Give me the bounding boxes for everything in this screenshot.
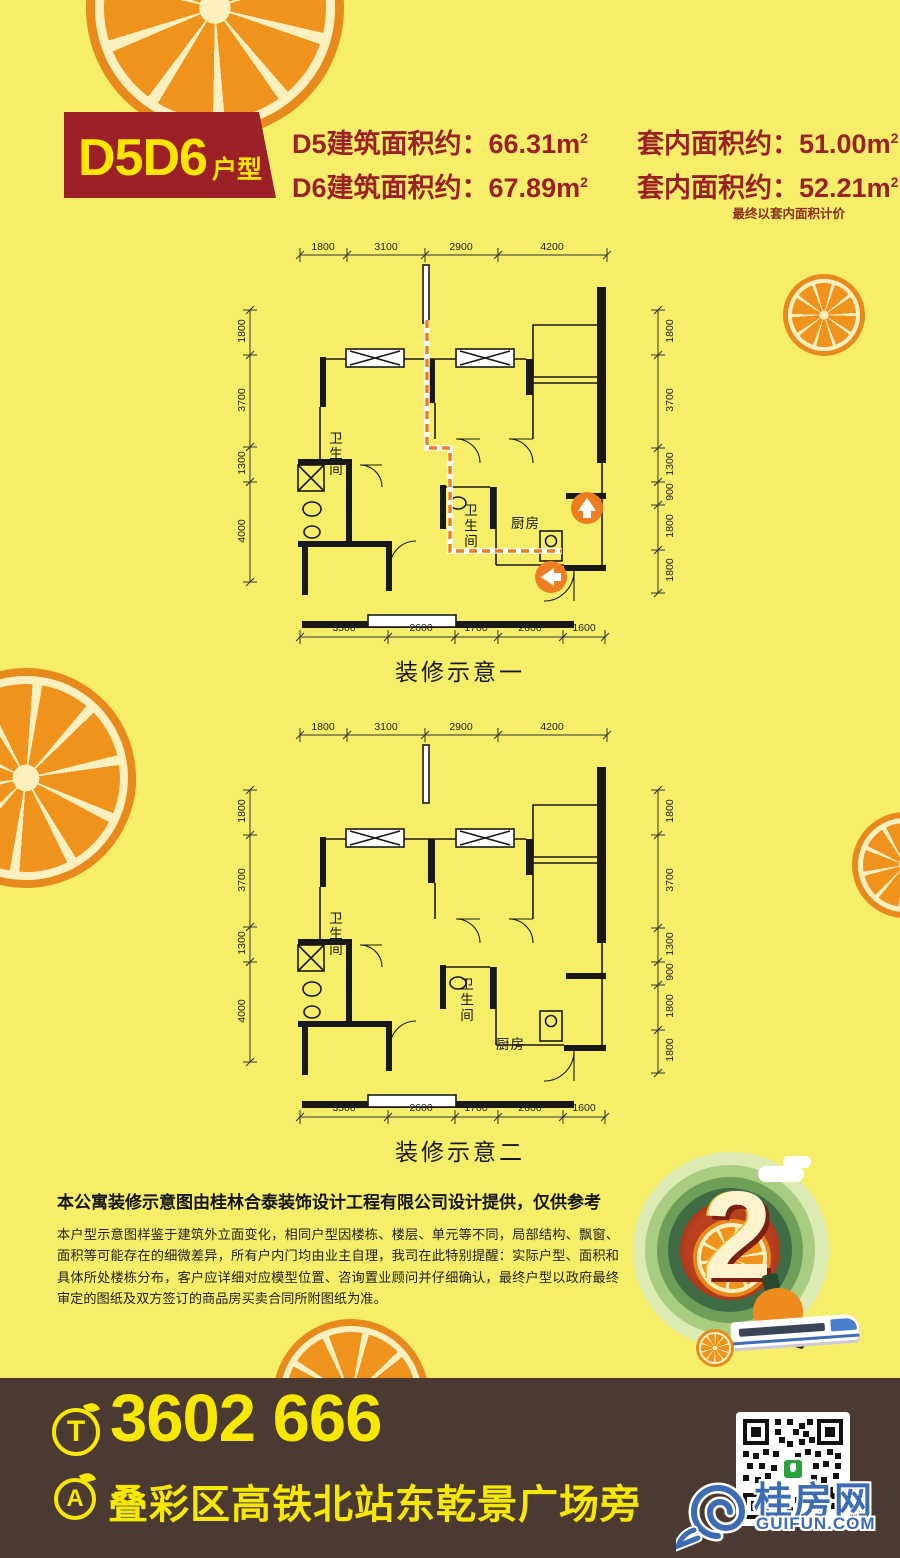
dim-label: 1800 — [664, 309, 676, 353]
dim-label: 1800 — [664, 548, 676, 592]
dim-label: 3100 — [364, 721, 408, 733]
disclaimer-body: 本户型示意图样鉴于建筑外立面变化，相同户型因楼栋、楼层、单元等不同，局部结构、飘… — [57, 1224, 619, 1310]
arrow-up-icon — [571, 492, 603, 524]
dim-label: 1700 — [454, 622, 498, 634]
location-icon: A — [54, 1478, 96, 1520]
dim-label: 1800 — [664, 789, 676, 833]
leaf-icon — [83, 1401, 100, 1414]
d5-inner-area: 套内面积约：51.00m2 — [637, 119, 898, 163]
cloud-icon — [783, 1156, 811, 1168]
dim-label: 4200 — [530, 721, 574, 733]
dim-label: 1600 — [562, 622, 606, 634]
dim-label: 1800 — [236, 789, 248, 833]
room-label-kitchen: 厨房 — [496, 1033, 525, 1053]
room-label-bathroom: 卫生间 — [324, 431, 344, 478]
dim-label: 2600 — [508, 1102, 552, 1114]
phone-icon-letter: T — [67, 1415, 85, 1449]
location-icon-letter: A — [66, 1485, 83, 1513]
dim-label: 2900 — [439, 241, 483, 253]
arrow-left-icon — [535, 561, 567, 593]
room-label-bathroom: 卫生间 — [455, 977, 475, 1024]
dim-label: 3700 — [664, 378, 676, 422]
dim-label: 3500 — [322, 622, 366, 634]
orange-slice-decoration — [839, 799, 900, 932]
leaf-icon — [79, 1471, 96, 1484]
room-label-kitchen: 厨房 — [511, 512, 540, 532]
floor-plan-drawing — [240, 235, 680, 645]
dim-label: 1800 — [664, 984, 676, 1028]
train-windows — [739, 1323, 825, 1337]
promo-emblem: 2 — [633, 1140, 883, 1385]
d5-build-area: D5建筑面积约：66.31m2 — [292, 119, 637, 163]
unit-type-badge: D5D6 户型 — [64, 112, 276, 198]
dim-label: 3500 — [322, 1102, 366, 1114]
train-nose — [830, 1318, 857, 1332]
dim-label: 3700 — [236, 378, 248, 422]
dim-label: 2600 — [399, 622, 443, 634]
floor-plan-1: 1800 3100 2900 4200 3500 2600 1700 2600 … — [240, 235, 700, 695]
dim-label: 3100 — [364, 241, 408, 253]
plan-caption: 装修示意一 — [240, 653, 680, 687]
poster: D5D6 户型 D5建筑面积约：66.31m2 套内面积约：51.00m2 D6… — [0, 0, 900, 1558]
dim-label: 1300 — [236, 441, 248, 485]
area-row-d5: D5建筑面积约：66.31m2 套内面积约：51.00m2 — [292, 119, 898, 163]
phone-number: 3602 666 — [110, 1380, 381, 1457]
dim-label: 4000 — [236, 989, 248, 1033]
dim-label: 3700 — [664, 858, 676, 902]
guifun-logo: 桂房网 GUIFUN.COM — [676, 1474, 896, 1558]
plan-caption: 装修示意二 — [240, 1133, 680, 1167]
orange-slice-decoration — [778, 269, 870, 361]
dim-label: 1800 — [664, 504, 676, 548]
dim-label: 1800 — [236, 309, 248, 353]
orange-slice-decoration — [0, 660, 144, 896]
pricing-note: 最终以套内面积计价 — [732, 203, 845, 222]
dim-label: 4000 — [236, 509, 248, 553]
dim-label: 1800 — [664, 1028, 676, 1072]
d6-build-area: D6建筑面积约：67.89m2 — [292, 163, 637, 207]
unit-type-title: D5D6 — [78, 118, 207, 198]
dim-label: 3700 — [236, 858, 248, 902]
dim-label: 1600 — [562, 1102, 606, 1114]
dim-label: 1800 — [301, 241, 345, 253]
dim-label: 2900 — [439, 721, 483, 733]
area-row-d6: D6建筑面积约：67.89m2 套内面积约：52.21m2 — [292, 163, 898, 207]
snail-icon — [676, 1474, 760, 1554]
d6-inner-area: 套内面积约：52.21m2 — [637, 163, 898, 207]
dim-label: 1700 — [454, 1102, 498, 1114]
floor-plan-drawing — [240, 715, 680, 1125]
floor-plan-2: 1800 3100 2900 4200 3500 2600 1700 2600 … — [240, 715, 700, 1175]
dim-label: 4200 — [530, 241, 574, 253]
disclaimer-headline: 本公寓装修示意图由桂林合泰装饰设计工程有限公司设计提供，仅供参考 — [57, 1188, 601, 1213]
unit-type-subtitle: 户型 — [212, 150, 262, 186]
dim-label: 2600 — [399, 1102, 443, 1114]
footer-bar: T 3602 666 A 叠彩区高铁北站东乾景广场旁 — [0, 1378, 900, 1558]
room-label-bathroom: 卫生间 — [324, 911, 344, 958]
dim-label: 1300 — [236, 921, 248, 965]
logo-domain: GUIFUN.COM — [756, 1514, 876, 1534]
phone-icon: T — [52, 1408, 100, 1456]
area-info: D5建筑面积约：66.31m2 套内面积约：51.00m2 D6建筑面积约：67… — [292, 119, 898, 207]
dim-label: 1800 — [301, 721, 345, 733]
walls-thick — [298, 767, 606, 1108]
address-text: 叠彩区高铁北站东乾景广场旁 — [108, 1472, 641, 1530]
dim-label: 2600 — [508, 622, 552, 634]
room-label-bathroom: 卫生间 — [459, 503, 479, 550]
